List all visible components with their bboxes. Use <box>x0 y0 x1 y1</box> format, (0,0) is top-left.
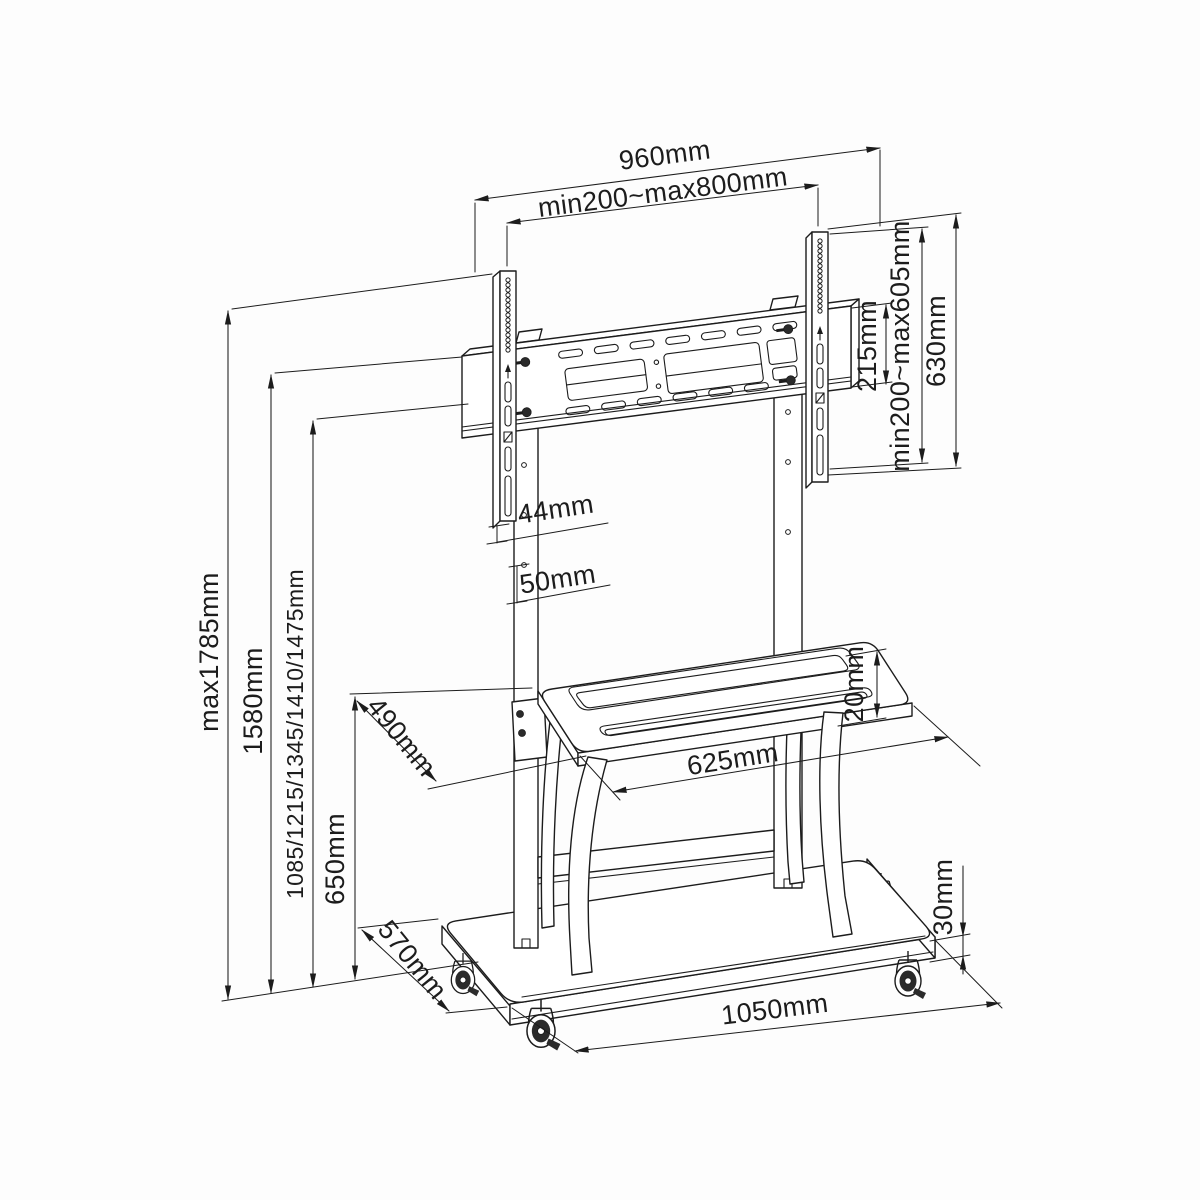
vesa-rail-right <box>806 232 828 488</box>
drawing-canvas: 960mm min200~max800mm 215mm min200~max60… <box>0 0 1200 1200</box>
dim-label-shelf-height: 650mm <box>320 813 350 905</box>
dim-label-shelf-depth: 490mm <box>361 692 442 782</box>
dim-label-bracket-hole-spacing: 215mm <box>852 300 882 392</box>
dim-label-base-thickness: 30mm <box>928 859 958 936</box>
dim-label-bracket-width: 960mm <box>617 134 712 175</box>
dim-label-base-depth: 570mm <box>372 915 453 1005</box>
dim-label-shelf-thickness: 20mm <box>839 646 869 723</box>
dim-label-rail-height: 630mm <box>921 295 951 387</box>
dim-label-height-positions: 1085/1215/1345/1410/1475mm <box>282 569 308 899</box>
technical-drawing: 960mm min200~max800mm 215mm min200~max60… <box>0 0 1200 1200</box>
dim-label-vesa-width-range: min200~max800mm <box>536 161 789 223</box>
dim-label-vesa-height-range: min200~max605mm <box>885 220 915 471</box>
dim-label-max-total-height: max1785mm <box>194 572 224 732</box>
vesa-rail-left <box>493 271 516 528</box>
dim-label-bracket-top-height: 1580mm <box>238 647 268 754</box>
